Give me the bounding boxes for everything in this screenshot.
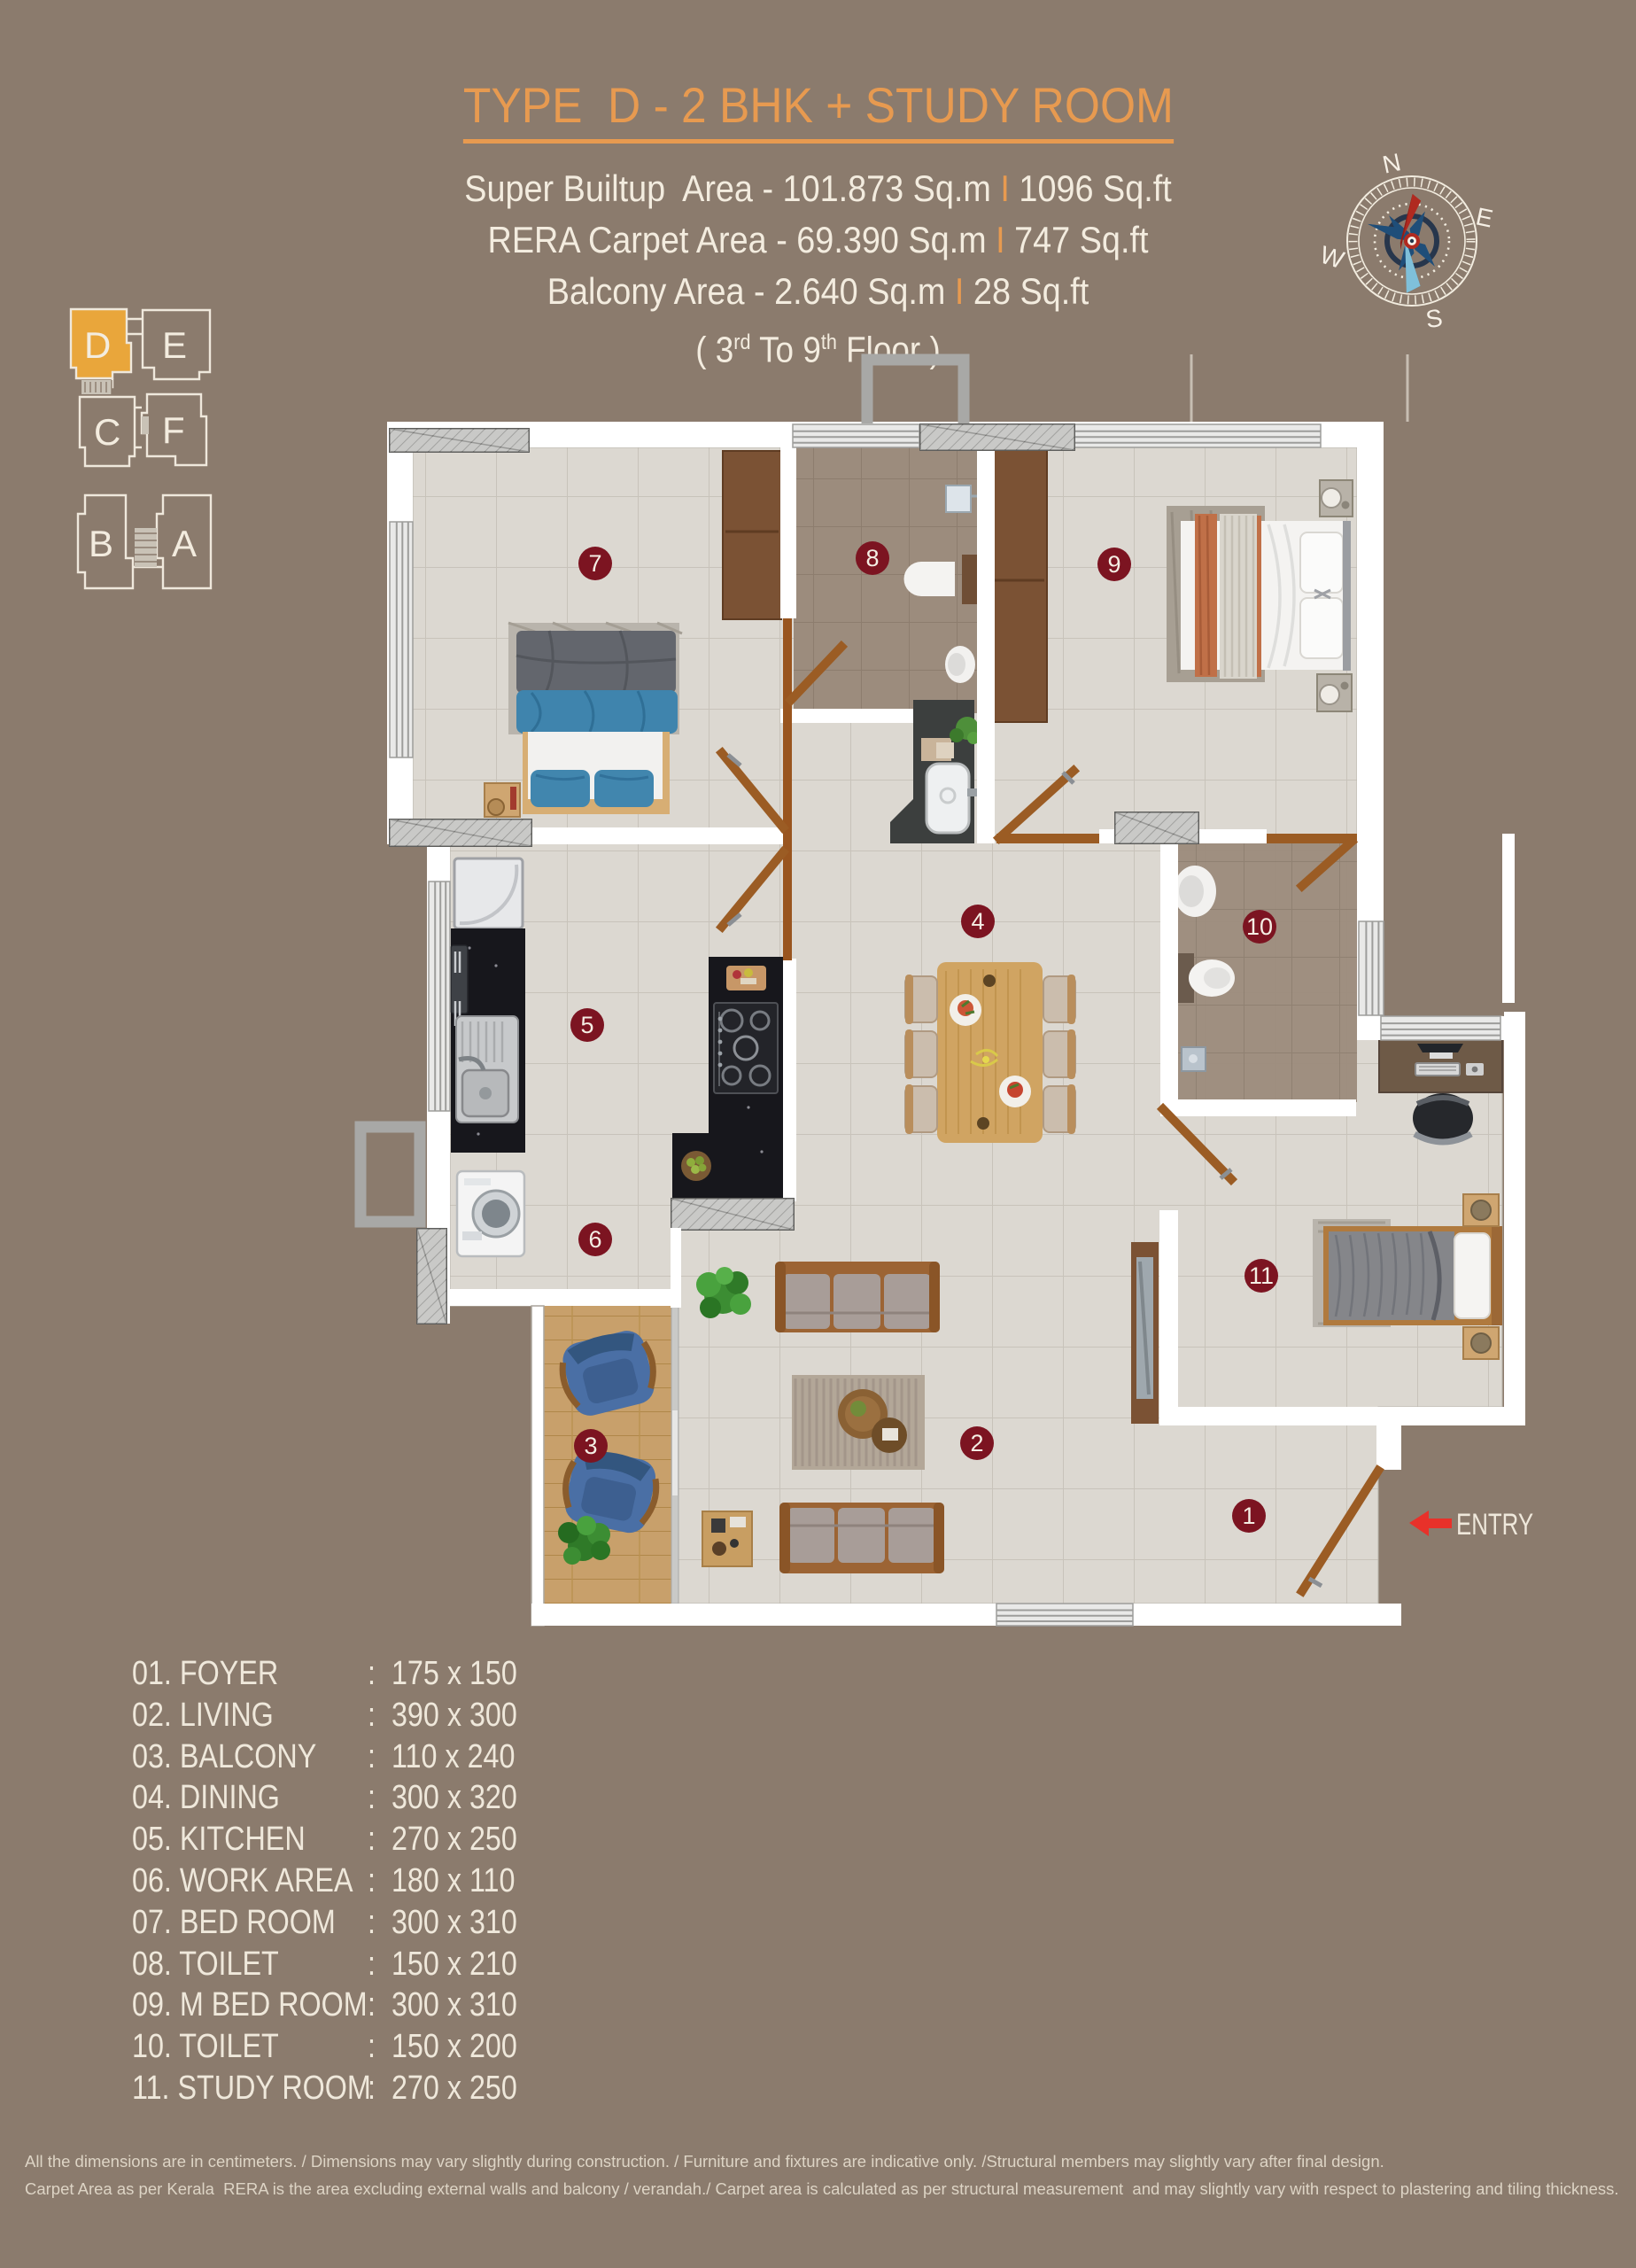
svg-text:E: E	[162, 324, 187, 366]
svg-text:ENTRY: ENTRY	[1456, 1509, 1533, 1542]
svg-text:C: C	[94, 411, 120, 453]
svg-text:5: 5	[580, 1012, 593, 1038]
svg-text:2: 2	[970, 1430, 983, 1456]
svg-text:3: 3	[584, 1433, 597, 1459]
svg-text:N: N	[1380, 148, 1403, 179]
svg-text:W: W	[1316, 241, 1347, 275]
svg-text:B: B	[89, 523, 113, 564]
svg-text:4: 4	[971, 908, 984, 935]
svg-text:9: 9	[1107, 551, 1120, 578]
svg-text:11: 11	[1249, 1262, 1274, 1289]
svg-text:7: 7	[588, 550, 601, 577]
svg-text:S: S	[1424, 304, 1445, 333]
svg-text:1: 1	[1242, 1503, 1255, 1529]
svg-text:D: D	[84, 324, 111, 366]
svg-text:F: F	[162, 409, 185, 451]
svg-text:8: 8	[865, 545, 879, 571]
svg-text:6: 6	[588, 1226, 601, 1253]
svg-text:E: E	[1474, 202, 1496, 232]
svg-text:10: 10	[1246, 913, 1273, 940]
svg-text:A: A	[172, 523, 197, 564]
